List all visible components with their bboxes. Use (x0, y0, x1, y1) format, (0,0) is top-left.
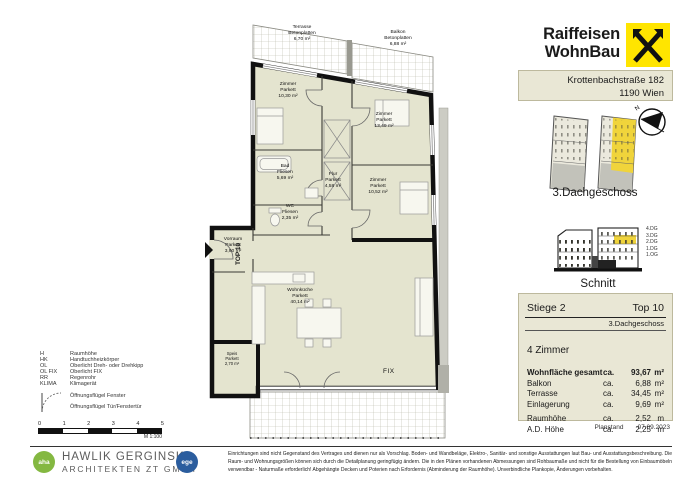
compass-icon: N (632, 102, 670, 140)
aha-logo: aha (33, 451, 55, 473)
stiege-label: Stiege 2 (527, 302, 566, 314)
scale-bar: 01 23 45 M 1:100 (38, 421, 164, 440)
legend-symbols: Öffnungsflügel Fenster Öffnungsflügel Tü… (70, 393, 142, 410)
room-label-wohnkueche: WohnkücheParkett40,14 m² (272, 288, 328, 305)
room-label-zimmer-1030: ZimmerParkett10,30 m² (264, 82, 312, 99)
footer-disclaimer: Einrichtungen sind nicht Gegenstand des … (228, 450, 672, 474)
metric-row: Einlagerungca. 9,69m² (525, 400, 666, 411)
metric-row: Wohnfläche gesamtca. 93,67m² (525, 368, 666, 379)
room-label-terrasse: TerrasseBetonplatten6,70 m² (272, 25, 332, 42)
address-box: Krottenbachstraße 182 1190 Wien (518, 70, 673, 101)
scale-ticks: 01 23 45 (38, 421, 164, 427)
ege-logo: ege (176, 451, 198, 473)
planstand: Planstand07.09.2023 (518, 424, 670, 431)
floorplan-drawing (205, 20, 460, 445)
schnitt-levels: 4.DG 3.DG 2.DG 1.DG 1.OG (646, 226, 658, 259)
room-label-wc: WCFliesen2,35 m² (272, 204, 308, 221)
keyplan-thumbnails (548, 115, 644, 193)
room-label-flur: FlurParkett4,58 m² (316, 172, 350, 189)
rooms-count: 4 Zimmer (527, 345, 664, 356)
metric-row: Raumhöheca. 2,52m (525, 414, 666, 425)
room-label-balkon: BalkonBetonplatten6,88 m² (368, 30, 428, 47)
fix-glazing-label: FIX (383, 368, 395, 375)
footer-divider (30, 446, 672, 447)
top-label: Top 10 (632, 302, 664, 314)
room-label-speis: SpeisParkett2,70 m² (213, 352, 251, 367)
brand-name: Raiffeisen WohnBau (500, 26, 620, 62)
unit-floor: 3.Dachgeschoss (525, 318, 666, 331)
room-label-vorraum: VorraumParkett3,90 m² (212, 237, 254, 254)
room-label-bad: BadFliesen5,69 m² (262, 164, 308, 181)
unit-info-box: Stiege 2 Top 10 3.Dachgeschoss 4 Zimmer … (518, 293, 673, 421)
metric-row: Terrasseca. 34,45m² (525, 389, 666, 400)
door-swing-icon (40, 390, 62, 414)
unit-header: Stiege 2 Top 10 (525, 300, 666, 318)
room-label-zimmer-1349: ZimmerParkett13,49 m² (358, 112, 410, 129)
entrance-label: TOP 10 (235, 243, 242, 265)
plan-sheet: { "header": { "brand_line1": "Raiffeisen… (0, 0, 680, 481)
raiffeisen-gable-cross-icon (626, 23, 670, 67)
floor-label: 3.Dachgeschoss (520, 187, 670, 199)
room-label-zimmer-1052: ZimmerParkett10,52 m² (352, 178, 404, 195)
compass-n: N (634, 105, 641, 112)
schnitt-drawing (552, 222, 644, 276)
scale-label: M 1:100 (38, 434, 162, 440)
legend-abbreviations: HRaumhöhe HKHandtuchheizkörper OLOberlic… (40, 351, 170, 387)
metric-row: Balkonca. 6,88m² (525, 379, 666, 390)
schnitt-title: Schnitt (552, 278, 644, 290)
